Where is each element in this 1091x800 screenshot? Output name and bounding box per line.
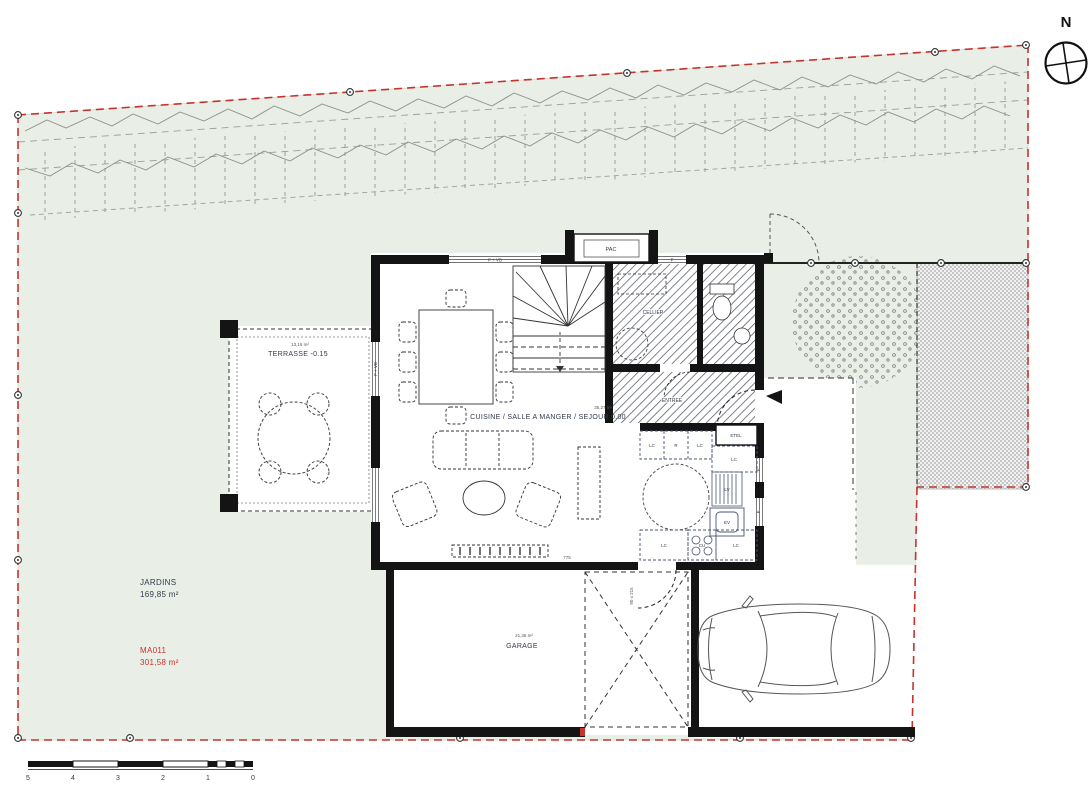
terrace-post [220,320,238,338]
parcel-area: 301,58 m² [140,658,179,667]
window-label-f-top: F [671,258,674,263]
etel-label: ETEL [730,433,742,438]
scale-tick: 5 [26,775,30,782]
staircase [513,266,605,372]
scale-bar: 5 4 3 2 1 0 [26,761,255,782]
lc-label: LC [661,543,668,548]
window-label-top: F + VB [488,258,502,263]
scale-tick: 2 [161,775,165,782]
window-label-f2: F [756,510,761,513]
scale-tick: 1 [206,775,210,782]
window-label-left: F + VB [373,362,378,376]
sejour-label: CUISINE / SALLE A MANGER / SEJOUR 0.00 [470,414,626,421]
cu-label: CU [699,543,706,548]
door-dim: 90 x 215 [629,587,634,605]
cellier-room: CELLIER [613,264,697,364]
threshold-marker [580,728,585,736]
terrace-post [220,494,238,512]
lc-label: LC [733,543,740,548]
lc-label: LC [649,443,656,448]
ev-label: EV [724,520,730,525]
lv-label: LV [724,487,729,492]
pac-unit: PAC [565,230,658,264]
north-compass-icon: N [1046,14,1087,84]
terrace-label: TERRASSE -0.15 [268,351,328,358]
wall-dim: 775 [563,555,571,560]
terrace-area: 13,16 m² [291,342,309,347]
north-label: N [1061,14,1072,31]
garage-area: 21,36 m² [515,633,533,638]
jardins-label: JARDINS [140,578,176,587]
scale-tick: 4 [71,775,75,782]
entree-label: ENTREE [662,398,683,404]
lc-label: LC [731,457,738,462]
parcel-id: MA011 [140,646,167,655]
scale-tick: 3 [116,775,120,782]
entree-hall: ENTREE [613,372,755,428]
site-plan-page: 13,16 m² TERRASSE -0.15 [0,0,1091,800]
site-plan-canvas: 13,16 m² TERRASSE -0.15 [0,0,1091,800]
tree [792,256,924,388]
garage-label: GARAGE [506,643,538,650]
wc-room [703,264,755,364]
jardins-area: 169,85 m² [140,590,179,599]
reserved-plot [917,263,1028,489]
lc-label: LC [697,443,704,448]
scale-tick: 0 [251,775,255,782]
sejour-area: 35,27 m² [594,405,612,410]
window-left-2 [371,468,380,522]
pac-label: PAC [606,247,617,253]
cellier-label: CELLIER [643,310,664,316]
